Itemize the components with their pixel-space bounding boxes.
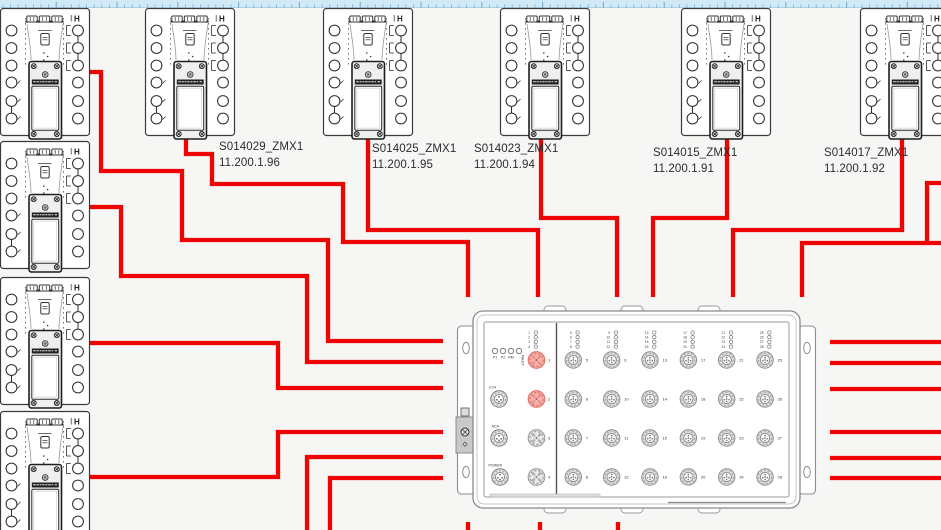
plug-connector-icon [27, 149, 37, 155]
port-led-number: 1 [528, 331, 530, 335]
terminal-circle [933, 25, 941, 36]
wire[interactable] [86, 343, 443, 388]
terminal-circle [687, 96, 698, 107]
port-number: 24 [739, 475, 744, 480]
port-number: 12 [624, 475, 629, 480]
svg-text:ACA: ACA [492, 425, 500, 429]
plug-connector-icon [552, 16, 562, 22]
terminal-circle [6, 193, 17, 204]
terminal-circle [329, 60, 340, 71]
port-led-number: 18 [683, 336, 687, 340]
plug-connector-icon [720, 16, 730, 22]
port-number: 17 [701, 358, 706, 363]
plug-connector-icon [52, 419, 62, 425]
terminal-circle [151, 60, 162, 71]
terminal-circle [866, 25, 877, 36]
port-led-number: 19 [683, 340, 687, 344]
port-led-number: 26 [760, 336, 764, 340]
terminal-circle [329, 113, 340, 124]
terminal-circle [218, 77, 229, 88]
port-led-number: 20 [683, 345, 687, 349]
wiring-diagram: HHHHHHHHHP1P2RMFAULTV.24ACAPOWER12341234… [0, 0, 941, 530]
plug-connector-icon [52, 285, 62, 291]
terminal-circle [6, 60, 17, 71]
terminal-circle [6, 158, 17, 169]
h-mark: H [74, 418, 80, 427]
terminal-circle [6, 246, 17, 257]
plug-connector-icon [350, 16, 360, 22]
terminal-circle [866, 43, 877, 54]
terminal-circle [396, 96, 407, 107]
port-led-number: 9 [608, 331, 610, 335]
terminal-circle [754, 25, 765, 36]
terminal-circle [506, 60, 517, 71]
port-number: 15 [663, 436, 668, 441]
terminal-circle [396, 25, 407, 36]
port-number: 26 [778, 397, 783, 402]
terminal-circle [6, 96, 17, 107]
network-switch[interactable]: P1P2RMFAULTV.24ACAPOWER12341234567856789… [456, 306, 816, 513]
terminal-circle [933, 60, 941, 71]
port-led-number: 6 [570, 336, 572, 340]
terminal-circle [218, 25, 229, 36]
port-led-number: 15 [645, 340, 649, 344]
terminal-circle [687, 25, 698, 36]
terminal-circle [6, 294, 17, 305]
terminal-circle [73, 382, 84, 393]
terminal-circle [754, 77, 765, 88]
port-number: 19 [701, 436, 706, 441]
h-mark: H [74, 15, 80, 24]
plug-connector-icon [27, 419, 37, 425]
terminal-circle [573, 77, 584, 88]
zmx-device[interactable]: H [146, 9, 235, 140]
plug-connector-icon [887, 16, 897, 22]
terminal-circle [6, 312, 17, 323]
zmx-device[interactable]: H [682, 9, 771, 140]
terminal-circle [506, 113, 517, 124]
plug-connector-icon [184, 16, 194, 22]
device-label: S014015_ZMX111.200.1.91 [653, 145, 737, 177]
plug-connector-icon [27, 285, 37, 291]
terminal-circle [6, 463, 17, 474]
port-number: 18 [701, 397, 706, 402]
terminal-circle [396, 43, 407, 54]
zmx-device[interactable]: H [1, 9, 90, 140]
terminal-circle [73, 25, 84, 36]
relay-icon [364, 34, 372, 46]
terminal-circle [73, 77, 84, 88]
terminal-circle [73, 516, 84, 527]
relay-icon [41, 303, 49, 315]
plug-connector-icon [52, 16, 62, 22]
device-ip: 11.200.1.92 [824, 161, 908, 177]
port-number: 21 [739, 358, 744, 363]
plug-connector-icon [912, 16, 922, 22]
zmx-device[interactable]: H [1, 278, 90, 409]
terminal-circle [933, 113, 941, 124]
plug-connector-icon [39, 285, 49, 291]
port-led-number: 21 [722, 331, 726, 335]
terminal-circle [754, 43, 765, 54]
terminal-circle [573, 25, 584, 36]
terminal-circle [573, 43, 584, 54]
terminal-circle [73, 463, 84, 474]
terminal-circle [866, 77, 877, 88]
device-name: S014029_ZMX1 [219, 139, 303, 155]
plug-connector-icon [362, 16, 372, 22]
port-number: 14 [663, 397, 668, 402]
terminal-circle [6, 365, 17, 376]
terminal-circle [6, 77, 17, 88]
zmx-device[interactable]: H [861, 9, 941, 140]
wire[interactable] [86, 432, 443, 477]
terminal-circle [573, 96, 584, 107]
device-ip: 11.200.1.96 [219, 155, 303, 171]
device-ip: 11.200.1.94 [474, 157, 558, 173]
terminal-circle [218, 60, 229, 71]
terminal-circle [6, 329, 17, 340]
relay-icon [541, 34, 549, 46]
terminal-circle [73, 158, 84, 169]
terminal-circle [151, 113, 162, 124]
svg-text:P1: P1 [493, 356, 497, 360]
port-led-number: 7 [570, 340, 572, 344]
port-number: 20 [701, 475, 706, 480]
h-mark: H [755, 15, 761, 24]
svg-text:P2: P2 [501, 356, 505, 360]
relay-icon [722, 34, 730, 46]
plug-connector-icon [375, 16, 385, 22]
terminal-circle [687, 43, 698, 54]
plug-connector-icon [39, 16, 49, 22]
terminal-circle [866, 113, 877, 124]
terminal-circle [6, 229, 17, 240]
terminal-circle [329, 25, 340, 36]
terminal-circle [73, 499, 84, 510]
terminal-circle [73, 113, 84, 124]
terminal-circle [573, 113, 584, 124]
port-led-number: 10 [606, 336, 610, 340]
h-mark: H [74, 284, 80, 293]
wire[interactable] [927, 183, 941, 243]
relay-icon [901, 34, 909, 46]
terminal-circle [73, 43, 84, 54]
terminal-circle [866, 96, 877, 107]
svg-text:POWER: POWER [489, 464, 503, 468]
zmx-device[interactable]: H [501, 9, 590, 140]
terminal-circle [73, 346, 84, 357]
terminal-circle [866, 60, 877, 71]
terminal-circle [6, 428, 17, 439]
port-number: 13 [663, 358, 668, 363]
terminal-circle [218, 96, 229, 107]
terminal-circle [218, 113, 229, 124]
terminal-circle [218, 43, 229, 54]
terminal-circle [73, 294, 84, 305]
port-led-number: 24 [722, 345, 726, 349]
terminal-circle [687, 60, 698, 71]
terminal-circle [73, 480, 84, 491]
terminal-circle [73, 96, 84, 107]
device-name: S014025_ZMX1 [372, 141, 456, 157]
plug-connector-icon [527, 16, 537, 22]
plug-connector-icon [197, 16, 207, 22]
terminal-circle [754, 60, 765, 71]
device-label: S014025_ZMX111.200.1.95 [372, 141, 456, 173]
terminal-circle [73, 365, 84, 376]
terminal-circle [6, 210, 17, 221]
port-led-number: 2 [528, 336, 530, 340]
terminal-circle [396, 77, 407, 88]
terminal-circle [6, 113, 17, 124]
plug-connector-icon [52, 149, 62, 155]
terminal-circle [6, 499, 17, 510]
h-mark: H [574, 15, 580, 24]
device-label: S014029_ZMX111.200.1.96 [219, 139, 303, 171]
terminal-circle [506, 25, 517, 36]
port-number: 22 [739, 397, 744, 402]
port-led-number: 11 [607, 340, 611, 344]
port-number: 25 [778, 358, 783, 363]
port-led-number: 28 [760, 345, 764, 349]
terminal-circle [73, 176, 84, 187]
plug-connector-icon [27, 16, 37, 22]
terminal-circle [329, 77, 340, 88]
terminal-circle [73, 193, 84, 204]
terminal-circle [933, 77, 941, 88]
device-name: S014017_ZMX1 [824, 145, 908, 161]
terminal-circle [506, 43, 517, 54]
device-label: S014023_ZMX111.200.1.94 [474, 141, 558, 173]
port-number: 27 [778, 436, 783, 441]
h-mark: H [397, 15, 403, 24]
device-ip: 11.200.1.95 [372, 157, 456, 173]
port-led-number: 23 [722, 340, 726, 344]
relay-icon [41, 437, 49, 449]
terminal-circle [73, 246, 84, 257]
plug-connector-icon [539, 16, 549, 22]
terminal-circle [73, 446, 84, 457]
terminal-circle [933, 96, 941, 107]
port-led-number: 4 [528, 345, 530, 349]
port-led-number: 13 [645, 331, 649, 335]
diagram-canvas: HHHHHHHHHP1P2RMFAULTV.24ACAPOWER12341234… [0, 0, 941, 530]
terminal-circle [6, 25, 17, 36]
port-number: 23 [739, 436, 744, 441]
terminal-circle [573, 60, 584, 71]
wire[interactable] [802, 243, 941, 297]
device-name: S014023_ZMX1 [474, 141, 558, 157]
terminal-circle [73, 60, 84, 71]
port-led-number: 16 [645, 345, 649, 349]
terminal-circle [151, 25, 162, 36]
plug-connector-icon [172, 16, 182, 22]
terminal-circle [754, 113, 765, 124]
port-number: 10 [624, 397, 629, 402]
terminal-circle [151, 43, 162, 54]
relay-icon [41, 167, 49, 179]
terminal-circle [6, 516, 17, 527]
port-led-number: 27 [760, 340, 764, 344]
terminal-circle [73, 312, 84, 323]
port-led-number: 12 [606, 345, 610, 349]
terminal-circle [933, 43, 941, 54]
terminal-circle [329, 43, 340, 54]
svg-text:V.24: V.24 [489, 386, 496, 390]
plug-connector-icon [899, 16, 909, 22]
h-mark: H [74, 148, 80, 157]
terminal-circle [6, 43, 17, 54]
terminal-circle [73, 229, 84, 240]
terminal-circle [73, 210, 84, 221]
relay-icon [41, 34, 49, 46]
svg-text:FAULT: FAULT [521, 355, 525, 365]
terminal-circle [506, 96, 517, 107]
terminal-circle [6, 480, 17, 491]
port-led-number: 5 [570, 331, 572, 335]
terminal-circle [687, 77, 698, 88]
port-led-number: 3 [528, 340, 530, 344]
port-number: 16 [663, 475, 668, 480]
port-led-number: 22 [722, 336, 726, 340]
plug-connector-icon [39, 149, 49, 155]
plug-connector-icon [39, 419, 49, 425]
device-name: S014015_ZMX1 [653, 145, 737, 161]
svg-text:RM: RM [508, 356, 513, 360]
port-led-number: 8 [570, 345, 572, 349]
terminal-circle [687, 113, 698, 124]
zmx-device[interactable]: H [1, 142, 90, 273]
terminal-circle [6, 446, 17, 457]
terminal-circle [6, 176, 17, 187]
terminal-circle [6, 346, 17, 357]
terminal-circle [6, 382, 17, 393]
wire[interactable] [330, 478, 443, 530]
port-led-number: 25 [760, 331, 764, 335]
device-label: S014017_ZMX111.200.1.92 [824, 145, 908, 177]
h-mark: H [219, 15, 225, 24]
device-ip: 11.200.1.91 [653, 161, 737, 177]
h-mark: H [934, 15, 940, 24]
plug-connector-icon [708, 16, 718, 22]
terminal-circle [151, 96, 162, 107]
terminal-circle [73, 329, 84, 340]
terminal-circle [151, 77, 162, 88]
terminal-circle [396, 113, 407, 124]
terminal-circle [329, 96, 340, 107]
wire[interactable] [307, 457, 443, 530]
terminal-circle [506, 77, 517, 88]
terminal-circle [73, 428, 84, 439]
port-number: 28 [778, 475, 783, 480]
horizontal-ruler [0, 0, 941, 8]
zmx-device[interactable]: H [324, 9, 413, 140]
terminal-circle [754, 96, 765, 107]
relay-icon [186, 34, 194, 46]
plug-connector-icon [733, 16, 743, 22]
terminal-circle [396, 60, 407, 71]
port-led-number: 14 [645, 336, 649, 340]
port-led-number: 17 [683, 331, 687, 335]
zmx-device[interactable]: H [1, 412, 90, 530]
